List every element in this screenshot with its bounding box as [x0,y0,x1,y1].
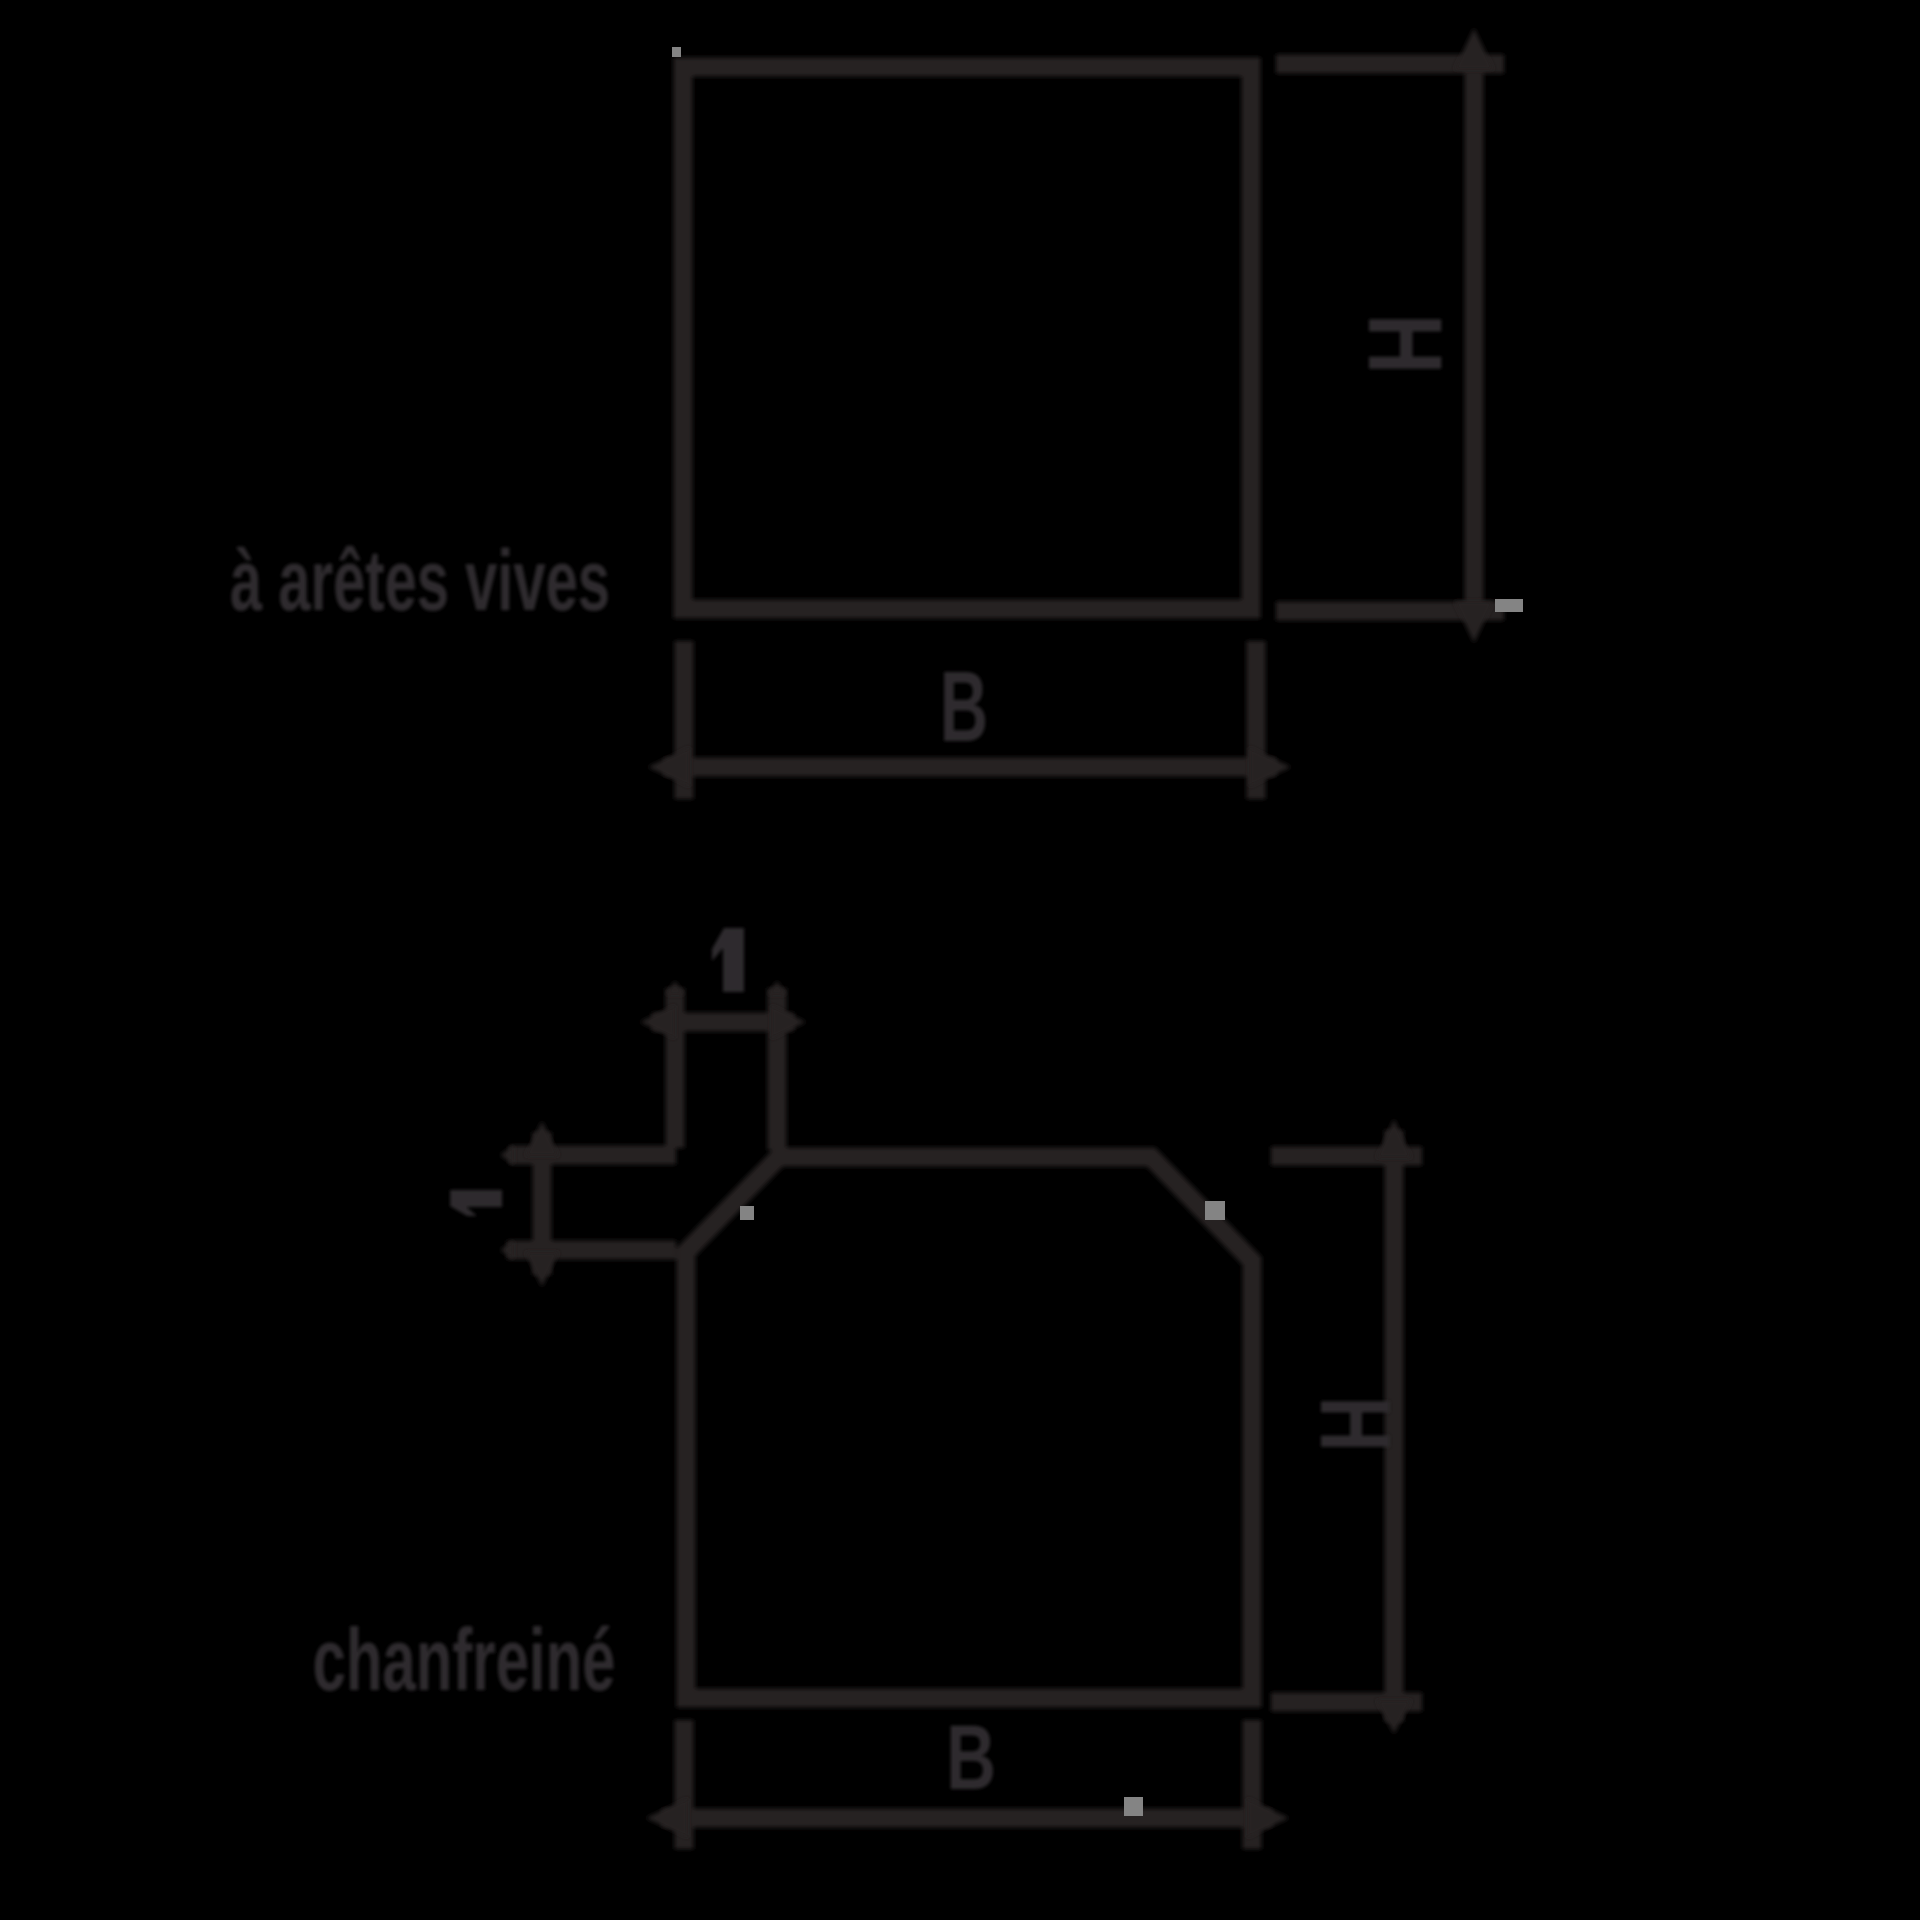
svg-text:à arêtes vives: à arêtes vives [230,533,610,629]
svg-text:B: B [940,652,988,764]
svg-text:B: B [946,1706,996,1809]
svg-text:H: H [1346,314,1463,375]
svg-text:chanfreiné: chanfreiné [313,1610,616,1709]
svg-text:H: H [1300,1396,1410,1452]
